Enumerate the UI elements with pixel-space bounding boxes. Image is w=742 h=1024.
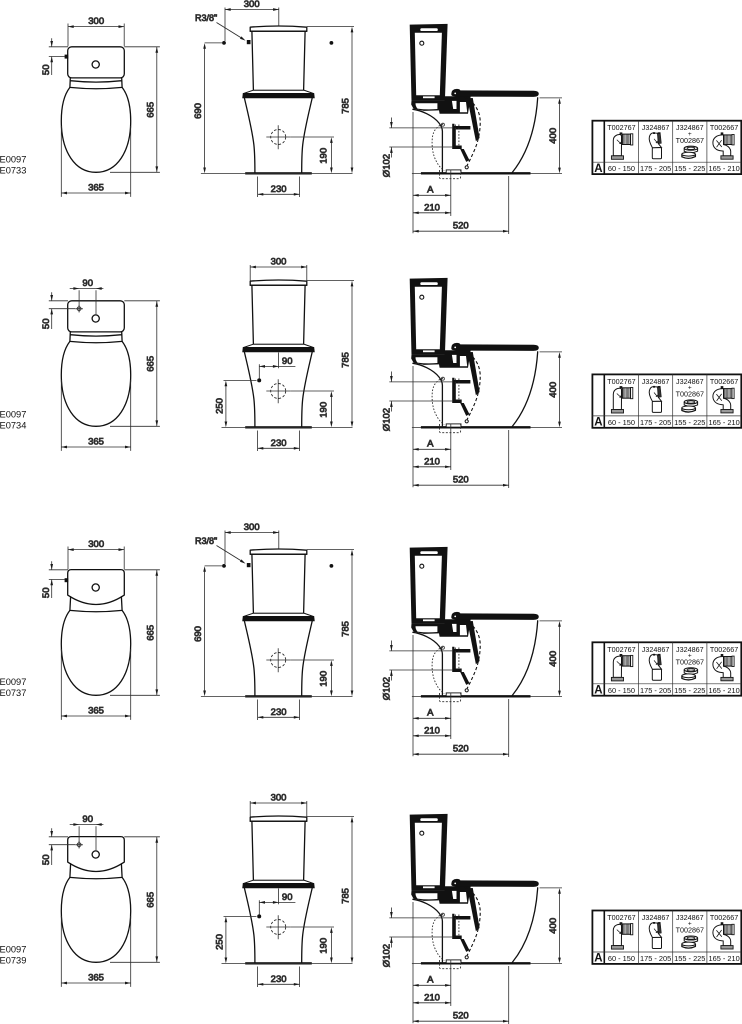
svg-text:230: 230 [271, 184, 287, 195]
svg-text:300: 300 [271, 793, 287, 804]
svg-text:400: 400 [548, 382, 559, 398]
svg-text:175 - 205: 175 - 205 [640, 164, 671, 173]
svg-text:50: 50 [41, 588, 52, 599]
svg-text:60 - 150: 60 - 150 [608, 164, 635, 173]
svg-text:365: 365 [88, 972, 104, 983]
svg-text:R3/8": R3/8" [195, 536, 217, 546]
svg-text:250: 250 [215, 934, 226, 950]
svg-text:J324867: J324867 [642, 377, 670, 386]
svg-text:165 - 210: 165 - 210 [708, 954, 739, 963]
svg-text:175 - 205: 175 - 205 [640, 686, 671, 695]
svg-text:175 - 205: 175 - 205 [640, 954, 671, 963]
svg-text:60 - 150: 60 - 150 [608, 954, 635, 963]
svg-text:365: 365 [88, 182, 104, 193]
svg-text:520: 520 [453, 1011, 469, 1022]
svg-text:690: 690 [193, 626, 204, 642]
svg-text:400: 400 [548, 651, 559, 667]
svg-text:365: 365 [88, 436, 104, 447]
svg-text:Ø102: Ø102 [381, 408, 392, 431]
svg-text:T002867: T002867 [676, 136, 704, 145]
svg-text:T002767: T002767 [607, 645, 635, 654]
svg-text:785: 785 [341, 98, 352, 114]
svg-text:90: 90 [282, 356, 293, 367]
svg-text:230: 230 [271, 974, 287, 985]
svg-text:365: 365 [88, 705, 104, 716]
svg-text:Ø102: Ø102 [381, 677, 392, 700]
svg-text:400: 400 [548, 918, 559, 934]
svg-text:785: 785 [341, 621, 352, 637]
svg-text:665: 665 [145, 892, 156, 908]
svg-text:400: 400 [548, 128, 559, 144]
svg-text:300: 300 [271, 257, 287, 268]
svg-text:90: 90 [82, 814, 93, 825]
svg-text:E0737: E0737 [0, 688, 26, 698]
svg-text:E0733: E0733 [0, 166, 26, 176]
svg-text:190: 190 [319, 402, 330, 418]
svg-text:R3/8": R3/8" [195, 13, 217, 23]
svg-text:J324867: J324867 [642, 645, 670, 654]
svg-text:A: A [427, 185, 434, 196]
svg-text:T002867: T002867 [676, 390, 704, 399]
svg-text:155 - 225: 155 - 225 [674, 954, 705, 963]
svg-text:520: 520 [453, 475, 469, 486]
svg-text:T002767: T002767 [607, 123, 635, 132]
svg-text:665: 665 [145, 102, 156, 118]
svg-text:155 - 225: 155 - 225 [674, 164, 705, 173]
svg-text:E0097: E0097 [0, 945, 26, 955]
svg-text:665: 665 [145, 625, 156, 641]
svg-text:210: 210 [424, 202, 440, 213]
svg-text:E0097: E0097 [0, 410, 26, 420]
svg-text:A: A [427, 708, 434, 719]
svg-text:190: 190 [319, 148, 330, 164]
svg-text:50: 50 [41, 855, 52, 866]
svg-text:A: A [427, 975, 434, 986]
svg-text:210: 210 [424, 725, 440, 736]
svg-text:E0734: E0734 [0, 421, 26, 431]
svg-text:E0097: E0097 [0, 155, 26, 165]
svg-text:300: 300 [244, 522, 260, 533]
svg-text:A: A [594, 953, 602, 965]
svg-text:60 - 150: 60 - 150 [608, 418, 635, 427]
svg-text:E0739: E0739 [0, 956, 26, 966]
svg-text:175 - 205: 175 - 205 [640, 418, 671, 427]
svg-text:Ø102: Ø102 [381, 154, 392, 177]
svg-text:Ø102: Ø102 [381, 944, 392, 967]
svg-text:250: 250 [215, 398, 226, 414]
svg-text:155 - 225: 155 - 225 [674, 686, 705, 695]
svg-text:T002867: T002867 [676, 657, 704, 666]
svg-text:T002667: T002667 [710, 913, 738, 922]
svg-text:90: 90 [282, 892, 293, 903]
svg-text:300: 300 [244, 0, 260, 10]
svg-text:690: 690 [193, 103, 204, 119]
svg-text:J324867: J324867 [642, 913, 670, 922]
svg-text:T002867: T002867 [676, 926, 704, 935]
svg-text:A: A [427, 439, 434, 450]
svg-text:E0097: E0097 [0, 677, 26, 687]
svg-text:A: A [594, 163, 602, 175]
svg-text:300: 300 [88, 16, 104, 27]
svg-text:90: 90 [82, 278, 93, 289]
svg-text:T002667: T002667 [710, 123, 738, 132]
svg-text:T002767: T002767 [607, 377, 635, 386]
svg-text:210: 210 [424, 456, 440, 467]
svg-text:60 - 150: 60 - 150 [608, 686, 635, 695]
svg-text:210: 210 [424, 992, 440, 1003]
svg-text:300: 300 [88, 539, 104, 550]
svg-text:165 - 210: 165 - 210 [708, 418, 739, 427]
svg-text:230: 230 [271, 707, 287, 718]
svg-text:665: 665 [145, 356, 156, 372]
svg-text:165 - 210: 165 - 210 [708, 686, 739, 695]
svg-text:165 - 210: 165 - 210 [708, 164, 739, 173]
svg-text:T002667: T002667 [710, 645, 738, 654]
svg-text:190: 190 [319, 671, 330, 687]
svg-text:A: A [594, 684, 602, 696]
svg-text:520: 520 [453, 744, 469, 755]
svg-text:520: 520 [453, 221, 469, 232]
svg-text:50: 50 [41, 319, 52, 330]
svg-text:190: 190 [319, 938, 330, 954]
svg-text:785: 785 [341, 888, 352, 904]
svg-text:A: A [594, 417, 602, 429]
svg-text:T002767: T002767 [607, 913, 635, 922]
svg-text:50: 50 [41, 65, 52, 76]
svg-text:J324867: J324867 [642, 123, 670, 132]
svg-text:T002667: T002667 [710, 377, 738, 386]
svg-text:155 - 225: 155 - 225 [674, 418, 705, 427]
svg-text:785: 785 [341, 352, 352, 368]
svg-text:230: 230 [271, 438, 287, 449]
